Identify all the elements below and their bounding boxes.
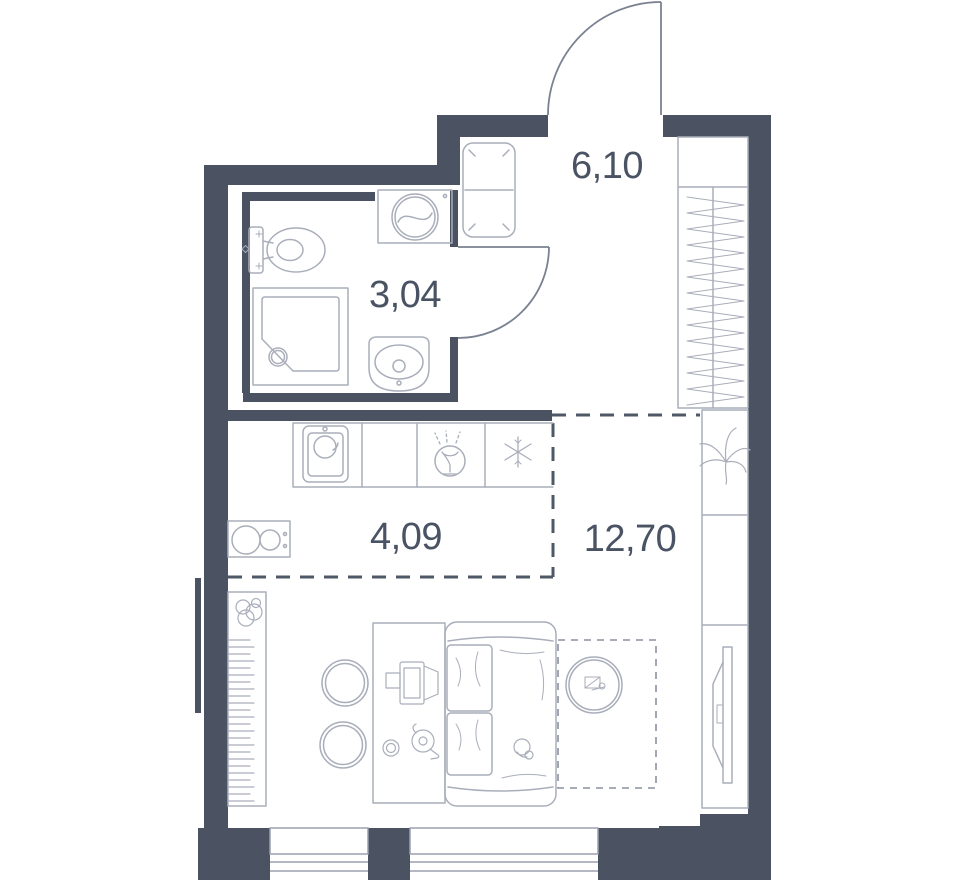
room-label-hallway: 6,10 bbox=[571, 145, 643, 187]
wall-kitchen-north bbox=[228, 410, 552, 421]
bathroom-partition-bottom bbox=[243, 393, 458, 402]
bathroom-partition-top bbox=[242, 192, 375, 201]
wall-bottom-right-block bbox=[659, 826, 771, 880]
round-table-top bbox=[322, 660, 368, 706]
dishwasher-icon bbox=[435, 431, 465, 476]
rug-zone bbox=[558, 640, 656, 788]
windows bbox=[270, 828, 598, 871]
wall-bottom-right-step bbox=[700, 814, 771, 828]
round-rug bbox=[566, 657, 622, 713]
wall-left-ledge bbox=[195, 578, 201, 713]
floor-plan-svg: 6,10 3,04 4,09 12,70 bbox=[0, 0, 973, 880]
fixtures bbox=[228, 137, 750, 808]
plant-icon bbox=[236, 599, 262, 627]
room-label-kitchen: 4,09 bbox=[370, 516, 442, 558]
cup-icon bbox=[383, 740, 399, 756]
hall-bench bbox=[463, 143, 515, 237]
desk bbox=[373, 623, 445, 803]
sofa-bed bbox=[445, 622, 556, 806]
wall-bottom-mid-pier bbox=[368, 828, 410, 880]
wall-right bbox=[748, 115, 771, 880]
entry-door-swing-arc bbox=[548, 2, 661, 115]
floor-plan: 6,10 3,04 4,09 12,70 bbox=[0, 0, 973, 880]
washing-machine bbox=[378, 190, 452, 243]
entry-door bbox=[548, 2, 661, 115]
toilet bbox=[242, 227, 325, 273]
shower-cabin bbox=[253, 288, 348, 385]
bathroom-door-swing-arc bbox=[458, 247, 549, 338]
bathroom-door bbox=[458, 247, 549, 338]
bathroom-partition-right-lower bbox=[450, 337, 458, 402]
washbasin bbox=[369, 337, 429, 391]
palm-plant-icon bbox=[700, 428, 750, 484]
room-labels: 6,10 3,04 4,09 12,70 bbox=[369, 145, 676, 560]
wall-top-left bbox=[204, 165, 460, 185]
bathroom-partition-right-upper bbox=[450, 190, 458, 247]
window-left bbox=[270, 828, 368, 871]
kitchen-sink bbox=[303, 426, 348, 482]
room-label-living-room: 12,70 bbox=[584, 518, 677, 560]
tv-icon bbox=[713, 647, 732, 783]
wall-bottom-left-pier bbox=[198, 828, 270, 880]
wall-left bbox=[204, 165, 228, 828]
stove bbox=[228, 521, 290, 557]
wall-top-mid bbox=[437, 115, 548, 137]
kettle-icon bbox=[412, 724, 439, 759]
round-table-bottom bbox=[320, 722, 366, 768]
hall-wardrobe bbox=[678, 137, 748, 408]
fridge-icon bbox=[505, 437, 531, 467]
walls bbox=[195, 115, 771, 880]
laptop-icon bbox=[386, 662, 438, 704]
toy-icon bbox=[514, 739, 533, 759]
room-label-bathroom: 3,04 bbox=[369, 274, 441, 316]
radiator-shelf bbox=[228, 592, 266, 806]
window-right bbox=[410, 828, 598, 871]
